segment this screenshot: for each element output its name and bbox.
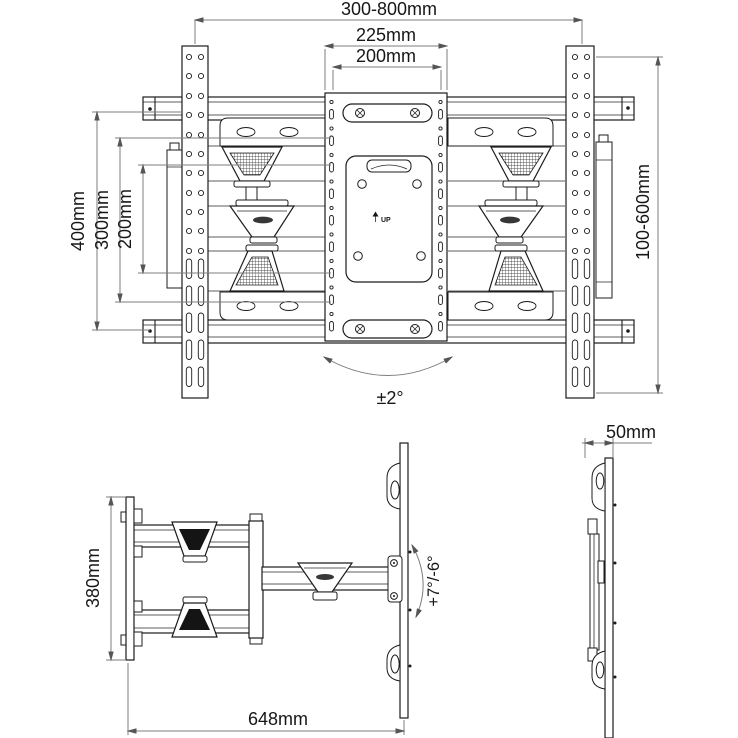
right-arm-assembly [448,118,565,320]
left-vertical-rail [182,46,208,398]
dim-tilt-label: +7°/-6° [425,555,443,606]
vesa-plate: UP [346,156,432,282]
dim-height-outer-label: 400mm [68,191,88,251]
dimension-folded-depth: 50mm [582,422,656,458]
left-arm-assembly [208,118,325,320]
dimension-tilt: +7°/-6° [412,545,443,617]
drawing-canvas: UP 300-800mm 225mm 200mm 400mm 300mm [0,0,738,738]
tv-bracket-plate [387,443,412,718]
dim-height-inner-label: 200mm [115,189,135,249]
right-vertical-rail [566,46,594,398]
profile-tv-plate [605,458,613,738]
upper-joint [172,522,217,562]
dim-vesa-width-label: 200mm [356,46,416,66]
dim-rail-height-label: 100-600mm [633,164,653,260]
dimension-vesa-width: 200mm [333,46,441,90]
front-view: UP 300-800mm 225mm 200mm 400mm 300mm [68,0,663,408]
technical-drawing-page: UP 300-800mm 225mm 200mm 400mm 300mm [0,0,738,738]
center-wall-plate: UP [325,93,447,341]
right-side-bracket [596,135,612,298]
dim-swivel-label: ±2° [376,388,403,408]
profile-view: 50mm [582,422,656,738]
dimension-swivel: ±2° [324,357,452,408]
lower-joint [172,597,217,637]
arm-extended-view: 380mm 648mm +7°/-6° [83,443,443,735]
dim-height-mid-label: 300mm [92,190,112,250]
dim-extension-label: 648mm [248,709,308,729]
dim-wall-plate-height-label: 380mm [83,548,103,608]
dimension-extension: 648mm [128,663,404,735]
dim-folded-depth-label: 50mm [606,422,656,442]
up-label: UP [381,217,391,224]
arm-link [249,514,263,644]
handle [367,160,411,172]
dim-plate-width-label: 225mm [356,25,416,45]
wall-plate [121,497,142,660]
dimension-wall-plate-height: 380mm [83,497,126,660]
dim-total-width-label: 300-800mm [341,0,437,19]
